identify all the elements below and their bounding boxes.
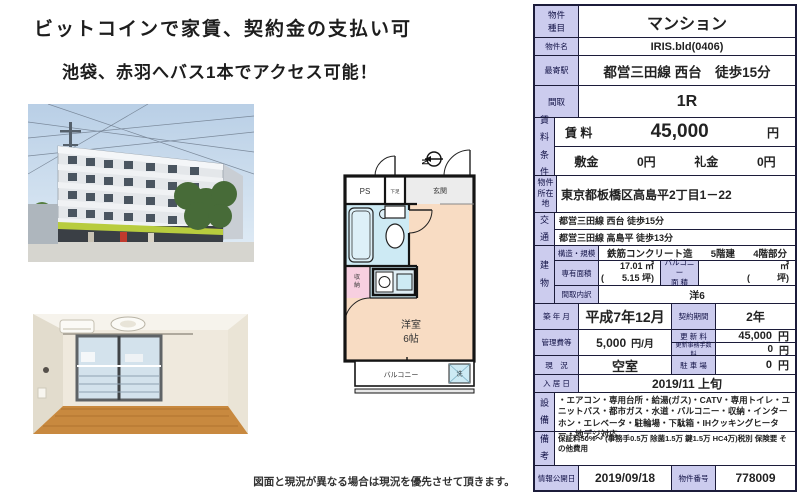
built-label: 築 年 月 [535,304,579,329]
property-type-value: マンション [579,6,795,37]
published-value: 2019/09/18 [579,466,672,490]
address-label: 物件所在地 [535,176,557,212]
property-name-value: IRIS.bld(0406) [579,38,795,55]
layout-detail-value: 洋6 [599,286,795,303]
row-layout: 間取 1R [535,86,795,118]
closet-area [345,266,370,298]
access-line1: 都営三田線 西台 徒歩15分 [555,213,795,230]
row-equipment: 設備 ・エアコン・専用台所・給湯(ガス)・CATV・専用トイレ・ユニットバス・都… [535,393,795,432]
north-arrow-icon: N [420,152,443,166]
property-type-label: 物件種目 [535,6,579,37]
fee-unit: 円/月 [631,335,654,350]
fee-value: 5,000 [596,336,626,350]
contract-label: 契約期間 [672,304,716,329]
entrance-label: 玄関 [433,186,447,195]
toilet-tank [385,206,405,218]
row-fee-renewal: 管理費等 5,000 円/月 更 新 料 45,000円 更新事務手数料 0円 [535,330,795,356]
row-status-parking: 現 況 空室 駐 車 場 0円 [535,356,795,375]
row-address: 物件所在地 東京都板橋区高島平2丁目1－22 [535,176,795,213]
row-building: 建物 構造・規模 鉄筋コンクリート造 5階建 4階部分 専有面積 17.01 ㎡… [535,246,795,304]
air-conditioner [60,320,94,333]
key-money-label: 礼金 [694,153,718,170]
rent-row: 賃 料 45,000 円 [555,118,795,147]
access-label: 交通 [535,213,555,245]
headline-bitcoin: ビットコインで家賃、契約金の支払い可 [34,14,412,41]
contract-value: 2年 [716,304,795,329]
floors-value: 5階建 [711,246,735,260]
layout-detail-label: 間取内訳 [555,286,599,303]
property-number-label: 物件番号 [672,466,716,490]
layout-value: 1R [579,86,795,117]
deposit-key-row: 敷金 0円 礼金 0円 [555,147,795,175]
shoe-label: 下足 [390,189,400,195]
room-size-label: 6帖 [403,332,419,345]
bathtub [349,208,373,262]
room-photo [33,314,248,434]
area-value: 17.01 ㎡ ( 5.15 坪) [599,261,661,285]
rent-unit: 円 [767,118,795,146]
deposit-value: 0円 [637,153,656,170]
property-spec-table: 物件種目 マンション 物件名 IRIS.bld(0406) 最寄駅 都営三田線 … [533,4,797,492]
published-label: 情報公開日 [535,466,579,490]
row-built-contract: 築 年 月 平成7年12月 契約期間 2年 [535,304,795,330]
built-value: 平成7年12月 [579,304,672,329]
station-value: 都営三田線 西台 徒歩15分 [579,56,795,85]
fee-label: 管理費等 [535,330,579,355]
renewal-value-cell: 45,000円 [716,330,795,342]
row-property-name: 物件名 IRIS.bld(0406) [535,38,795,56]
area-label: 専有面積 [555,261,599,285]
washer-label: 洗 [456,370,462,378]
status-label: 現 況 [535,356,579,374]
access-line2: 都営三田線 高島平 徒歩13分 [555,230,795,246]
row-rent-conditions: 賃料条件 賃 料 45,000 円 敷金 0円 礼金 0円 [535,118,795,176]
key-money-value: 0円 [757,153,776,170]
layout-detail-row: 間取内訳 洋6 [555,286,795,303]
row-remarks: 備考 保証料50%～ (事務手0.5万 除菌1.5万 鍵1.5万 HC4万)税別… [535,432,795,467]
move-in-label: 入 居 日 [535,375,579,392]
equipment-value: ・エアコン・専用台所・給湯(ガス)・CATV・専用トイレ・ユニットバス・都市ガス… [555,393,795,431]
toilet-bowl [386,224,404,248]
renewal-admin-row: 更新事務手数料 0円 [672,343,795,355]
structure-label: 構造・規模 [555,246,599,260]
status-value: 空室 [579,356,672,374]
renewal-admin-value-cell: 0円 [716,343,795,355]
area-row: 専有面積 17.01 ㎡ ( 5.15 坪) バルコニー 面 積 ㎡ ( 坪) [555,261,795,286]
equipment-label: 設備 [535,393,555,431]
building-label: 建物 [535,246,555,303]
parking-label: 駐 車 場 [672,356,716,374]
property-number-value: 778009 [716,466,795,490]
wood-floor [33,406,248,434]
disclaimer-text: 図面と現況が異なる場合は現況を優先させて頂きます。 [238,474,530,489]
window [77,336,161,400]
closet-label: 収 [354,274,360,281]
building-photo [28,104,254,262]
deposit-label: 敷金 [574,153,598,170]
renewal-admin-label: 更新事務手数料 [672,343,716,355]
balcony-area-value: ㎡ ( 坪) [699,261,795,285]
rent-label: 賃 料 [555,118,592,146]
property-name-label: 物件名 [535,38,579,55]
floor-part-value: 4階部分 [753,246,787,260]
address-value: 東京都板橋区高島平2丁目1－22 [557,176,795,212]
move-in-value: 2019/11 上旬 [579,375,795,392]
ps-label: PS [360,187,371,196]
row-published-number: 情報公開日 2019/09/18 物件番号 778009 [535,466,795,490]
fee-value-cell: 5,000 円/月 [579,330,672,355]
balcony-area-label: バルコニー 面 積 [661,261,699,285]
row-property-type: 物件種目 マンション [535,6,795,38]
parking-value-cell: 0円 [716,356,795,374]
flyer-page: ビットコインで家賃、契約金の支払い可 池袋、赤羽へバス1本でアクセス可能！ [0,0,800,496]
rent-value: 45,000 [592,118,767,146]
remarks-value: 保証料50%～ (事務手0.5万 除菌1.5万 鍵1.5万 HC4万)税別 保険… [555,432,795,466]
room-label: 洋室 [401,318,421,331]
structure-value-row: 鉄筋コンクリート造 5階建 4階部分 [599,246,795,260]
svg-text:N: N [420,159,429,165]
remarks-label: 備考 [535,432,555,466]
station-label: 最寄駅 [535,56,579,85]
balcony-label: バルコニー [384,371,419,379]
row-station: 最寄駅 都営三田線 西台 徒歩15分 [535,56,795,86]
row-access: 交通 都営三田線 西台 徒歩15分 都営三田線 高島平 徒歩13分 [535,213,795,246]
headline-bus-access: 池袋、赤羽へバス1本でアクセス可能！ [62,58,378,83]
rent-conditions-label: 賃料条件 [535,118,555,175]
row-move-in: 入 居 日 2019/11 上旬 [535,375,795,393]
intercom [43,367,49,373]
floor-plan: N PS 下足 玄関 収 納 洋室 6帖 バルコニー 洗 [337,146,482,398]
closet-label2: 納 [354,281,360,289]
